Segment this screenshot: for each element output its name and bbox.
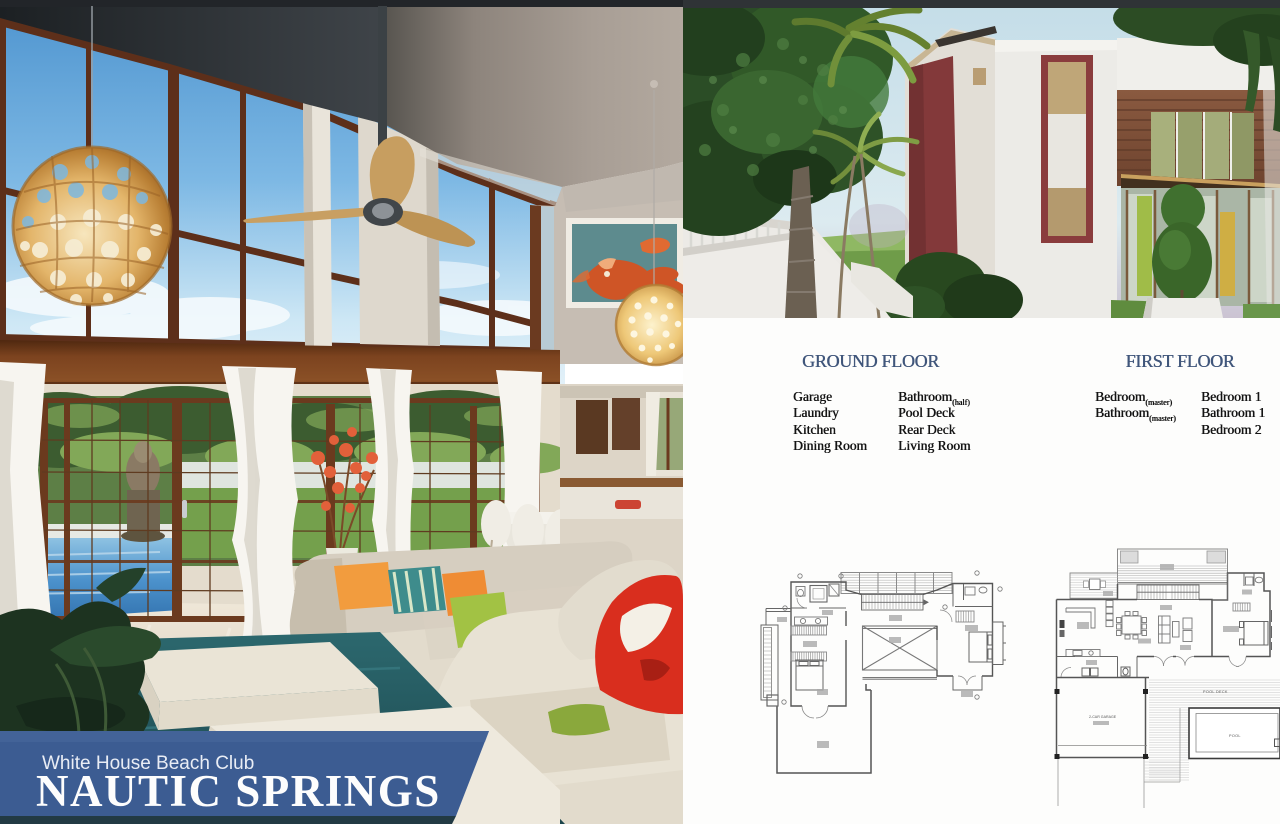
svg-text:POOL: POOL	[1229, 734, 1241, 738]
svg-text:NAUTIC SPRINGS: NAUTIC SPRINGS	[36, 766, 441, 816]
svg-text:POOL DECK: POOL DECK	[1203, 690, 1228, 694]
svg-text:2-CAR GARAGE: 2-CAR GARAGE	[1089, 715, 1117, 719]
